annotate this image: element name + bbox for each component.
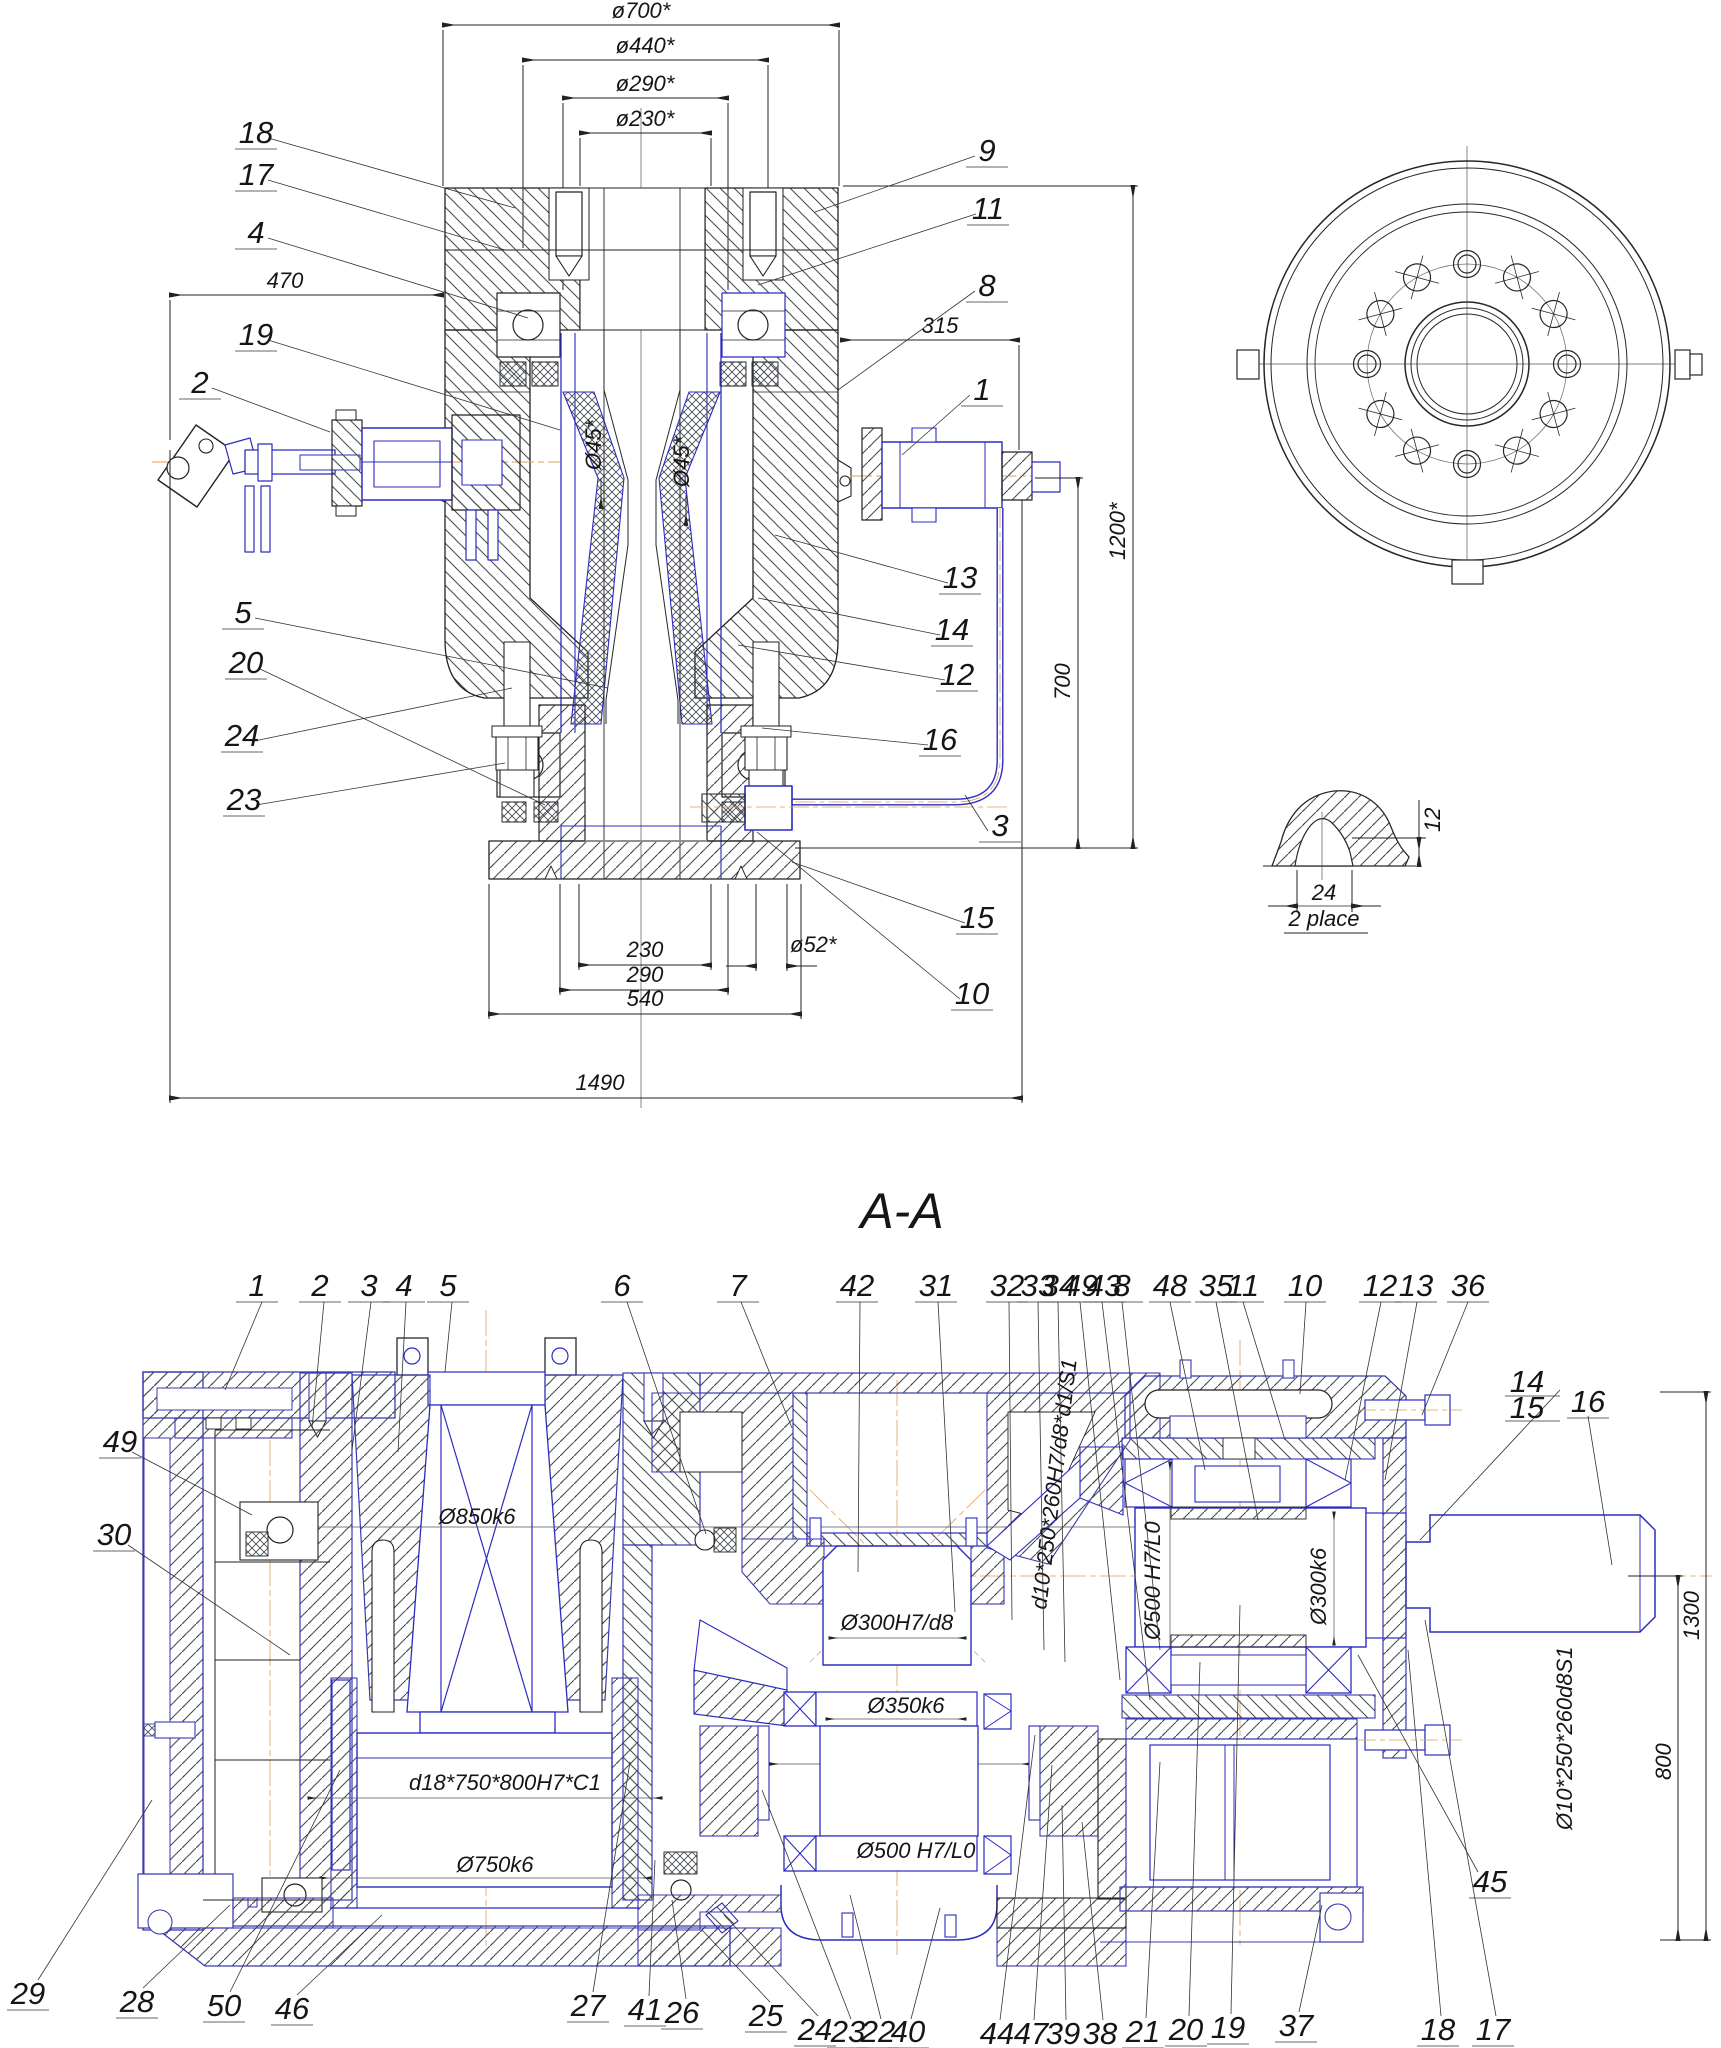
- svg-text:49: 49: [103, 1424, 137, 1459]
- svg-text:10: 10: [1288, 1268, 1322, 1303]
- svg-text:Ø500 H7/L0: Ø500 H7/L0: [856, 1838, 976, 1863]
- svg-text:21: 21: [1125, 2014, 1160, 2048]
- svg-text:15: 15: [960, 900, 995, 935]
- svg-text:50: 50: [207, 1988, 241, 2023]
- svg-text:18: 18: [239, 115, 274, 150]
- svg-text:28: 28: [119, 1984, 155, 2019]
- svg-text:11: 11: [972, 191, 1004, 226]
- svg-text:38: 38: [1083, 2016, 1118, 2048]
- svg-text:1: 1: [248, 1268, 265, 1303]
- svg-text:Ø300H7/d8: Ø300H7/d8: [840, 1610, 954, 1635]
- svg-text:9: 9: [978, 133, 995, 168]
- svg-text:2 place: 2 place: [1288, 906, 1360, 931]
- svg-text:14: 14: [935, 612, 969, 647]
- svg-text:ø700*: ø700*: [612, 0, 672, 23]
- svg-text:4: 4: [247, 215, 264, 250]
- svg-text:24: 24: [1311, 880, 1336, 905]
- svg-text:20: 20: [1168, 2012, 1203, 2047]
- svg-text:ø440*: ø440*: [616, 33, 676, 58]
- svg-text:19: 19: [1211, 2010, 1245, 2045]
- svg-text:A-A: A-A: [857, 1183, 943, 1239]
- svg-text:19: 19: [239, 317, 273, 352]
- svg-text:32: 32: [990, 1268, 1024, 1303]
- svg-text:470: 470: [267, 268, 304, 293]
- svg-text:Ø45*: Ø45*: [581, 418, 606, 471]
- svg-text:3: 3: [991, 808, 1008, 843]
- svg-text:11: 11: [1227, 1268, 1259, 1303]
- svg-text:24: 24: [224, 718, 259, 753]
- svg-text:10: 10: [955, 976, 989, 1011]
- svg-text:8: 8: [978, 268, 996, 303]
- svg-text:39: 39: [1046, 2016, 1080, 2048]
- svg-text:16: 16: [923, 722, 958, 757]
- svg-text:ø230*: ø230*: [616, 106, 676, 131]
- svg-text:5: 5: [439, 1268, 457, 1303]
- svg-text:Ø850k6: Ø850k6: [437, 1504, 516, 1529]
- svg-text:230: 230: [626, 937, 664, 962]
- svg-text:18: 18: [1421, 2012, 1456, 2047]
- svg-text:44: 44: [980, 2016, 1014, 2048]
- svg-text:12: 12: [1363, 1268, 1397, 1303]
- svg-text:45: 45: [1473, 1864, 1508, 1899]
- svg-text:12: 12: [1420, 808, 1445, 832]
- svg-text:6: 6: [613, 1268, 631, 1303]
- svg-text:46: 46: [275, 1991, 310, 2026]
- svg-text:27: 27: [570, 1988, 607, 2023]
- svg-text:31: 31: [919, 1268, 953, 1303]
- svg-text:13: 13: [1399, 1268, 1433, 1303]
- svg-text:36: 36: [1451, 1268, 1486, 1303]
- svg-text:15: 15: [1510, 1390, 1545, 1425]
- svg-text:ø52*: ø52*: [790, 932, 838, 957]
- svg-text:48: 48: [1153, 1268, 1188, 1303]
- svg-text:40: 40: [891, 2014, 925, 2048]
- svg-text:2: 2: [310, 1268, 328, 1303]
- svg-text:26: 26: [664, 1995, 700, 2030]
- svg-text:13: 13: [943, 560, 977, 595]
- svg-text:4: 4: [395, 1268, 412, 1303]
- svg-text:17: 17: [1476, 2012, 1512, 2047]
- svg-text:3: 3: [360, 1268, 377, 1303]
- svg-text:20: 20: [228, 645, 263, 680]
- svg-text:Ø45*: Ø45*: [669, 435, 694, 488]
- svg-text:29: 29: [10, 1976, 45, 2011]
- svg-text:Ø350k6: Ø350k6: [866, 1693, 945, 1718]
- svg-text:Ø750k6: Ø750k6: [455, 1852, 534, 1877]
- svg-text:47: 47: [1014, 2016, 1050, 2048]
- svg-text:d18*750*800H7*C1: d18*750*800H7*C1: [409, 1770, 601, 1795]
- svg-text:17: 17: [239, 157, 275, 192]
- svg-text:7: 7: [729, 1268, 748, 1303]
- svg-text:2: 2: [190, 365, 208, 400]
- svg-text:540: 540: [627, 986, 664, 1011]
- svg-text:8: 8: [1113, 1268, 1131, 1303]
- svg-text:30: 30: [97, 1517, 131, 1552]
- svg-text:1200*: 1200*: [1105, 501, 1130, 560]
- svg-text:16: 16: [1571, 1384, 1606, 1419]
- svg-text:5: 5: [234, 595, 252, 630]
- svg-text:12: 12: [940, 657, 974, 692]
- svg-text:Ø300k6: Ø300k6: [1306, 1547, 1331, 1626]
- svg-text:37: 37: [1279, 2008, 1315, 2043]
- svg-text:1300: 1300: [1679, 1590, 1704, 1640]
- svg-text:42: 42: [840, 1268, 874, 1303]
- svg-text:41: 41: [628, 1992, 662, 2027]
- svg-text:Ø10*250*260d8S1: Ø10*250*260d8S1: [1552, 1647, 1577, 1832]
- svg-text:800: 800: [1651, 1743, 1676, 1780]
- svg-text:25: 25: [748, 1998, 784, 2033]
- svg-text:1490: 1490: [576, 1070, 626, 1095]
- svg-text:23: 23: [226, 782, 261, 817]
- svg-text:ø290*: ø290*: [616, 71, 676, 96]
- svg-text:700: 700: [1050, 663, 1075, 700]
- svg-text:24: 24: [797, 2012, 832, 2047]
- svg-text:1: 1: [973, 372, 990, 407]
- svg-text:290: 290: [626, 962, 664, 987]
